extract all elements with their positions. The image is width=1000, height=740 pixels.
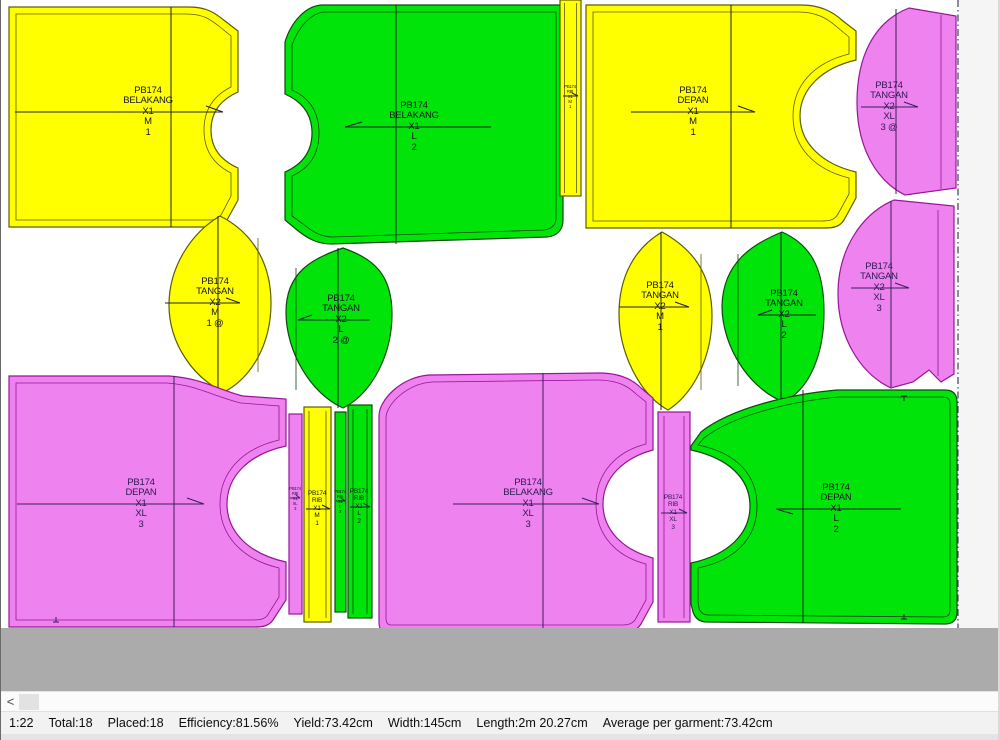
piece-label: PB174DEPANX1XL3: [125, 478, 156, 530]
piece-rib-x1-xl-3-a[interactable]: [289, 414, 302, 614]
piece-label: PB174TANGANX2XL3 @: [870, 81, 908, 133]
piece-label: PB174TANGANX2L2 @: [322, 294, 360, 346]
piece-label: PB174TANGANX2M1 @: [196, 277, 234, 329]
piece-label: PB174TANGANX2XL3: [860, 262, 898, 314]
piece-label: PB174RIBX1L2: [334, 489, 345, 514]
fabric-waste-band: [1, 628, 1000, 691]
status-average: Average per garment:73.42cm: [603, 716, 773, 730]
piece-label: PB174RIBX1XL3: [664, 494, 682, 531]
scroll-left-button[interactable]: <: [3, 694, 18, 710]
horizontal-scrollbar[interactable]: <: [1, 691, 1000, 711]
status-yield: Yield:73.42cm: [294, 716, 373, 730]
off-marker-margin: [959, 0, 1000, 628]
status-placed: Placed:18: [108, 716, 164, 730]
piece-label: PB174BELAKANGX1L2: [389, 101, 439, 153]
piece-label: PB174TANGANX2M1: [641, 281, 679, 333]
piece-label: PB174RIBX1M1: [308, 490, 326, 527]
piece-label: PB174RIBX1L2: [350, 488, 368, 525]
status-length: Length:2m 20.27cm: [476, 716, 587, 730]
piece-label: PB174DEPANX1L2: [820, 483, 851, 535]
status-efficiency: Efficiency:81.56%: [179, 716, 279, 730]
window-bottom-edge: [1, 734, 1000, 740]
piece-label: PB174TANGANX2L2: [765, 289, 803, 341]
marker-canvas: PB174BELAKANGX1M1 PB174BELAKANGX1L2 PB17…: [1, 0, 1000, 628]
outline: [289, 414, 302, 614]
piece-label: PB174BELAKANGX1M1: [123, 86, 173, 138]
piece-label: PB174RIBX1XL3: [289, 486, 300, 511]
piece-label: PB174DEPANX1M1: [677, 86, 708, 138]
piece-label: PB174BELAKANGX1XL3: [503, 478, 553, 530]
piece-label: PB174RIBX1M1: [564, 84, 575, 109]
status-total: Total:18: [49, 716, 93, 730]
status-scale: 1:22: [9, 716, 34, 730]
status-width: Width:145cm: [388, 716, 462, 730]
status-bar: 1:22Total:18Placed:18Efficiency:81.56%Yi…: [1, 711, 1000, 734]
scrollbar-thumb[interactable]: [19, 694, 39, 710]
